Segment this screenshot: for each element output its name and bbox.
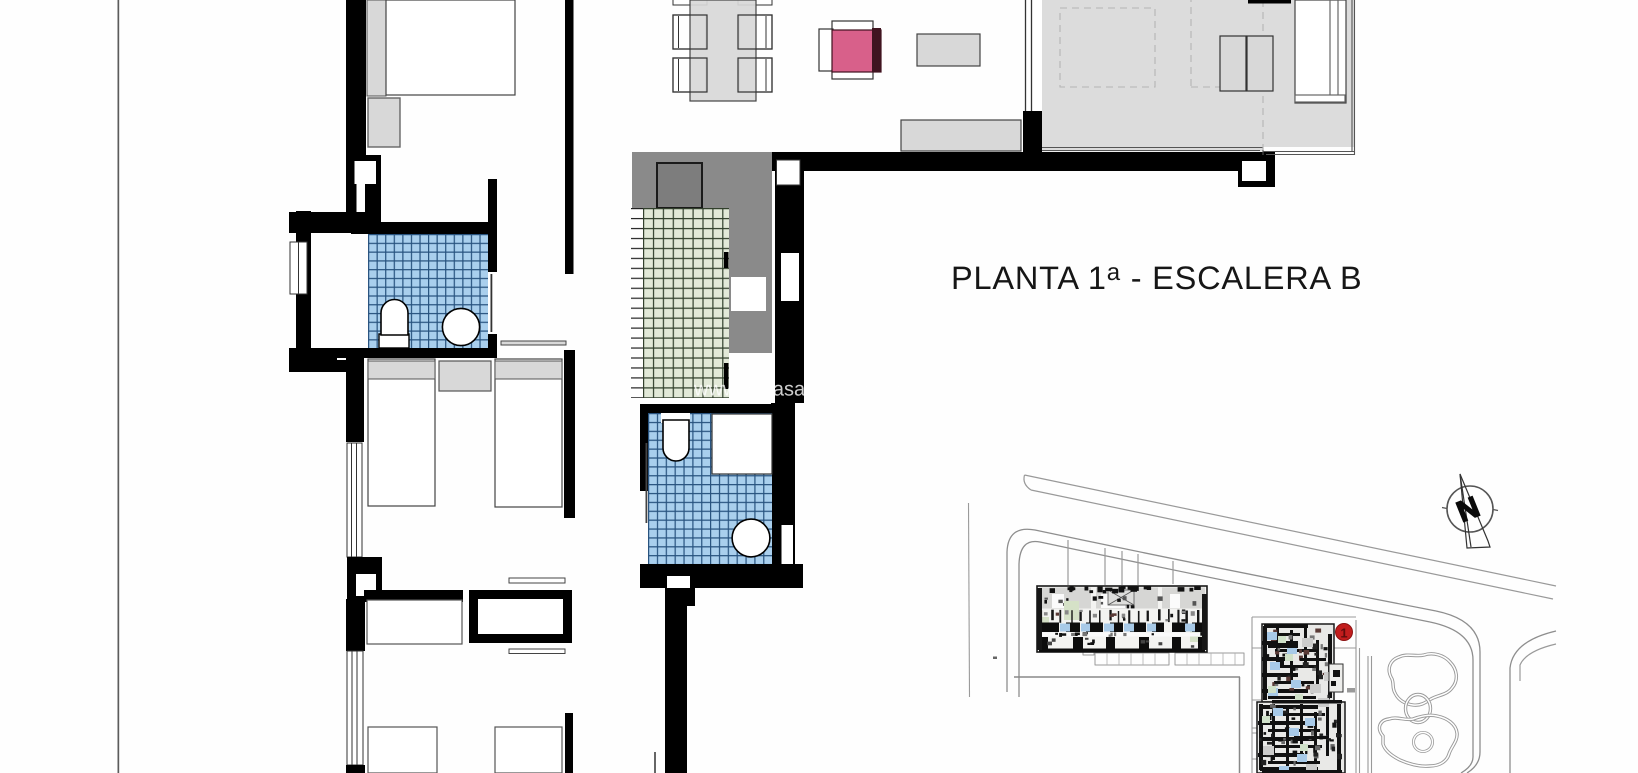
- svg-text:1: 1: [1340, 626, 1347, 641]
- svg-text:PLANTA 1a - ESCALERA B: PLANTA 1a - ESCALERA B: [951, 259, 1363, 296]
- svg-text:www.casasatlantico.com: www.casasatlantico.com: [693, 379, 912, 401]
